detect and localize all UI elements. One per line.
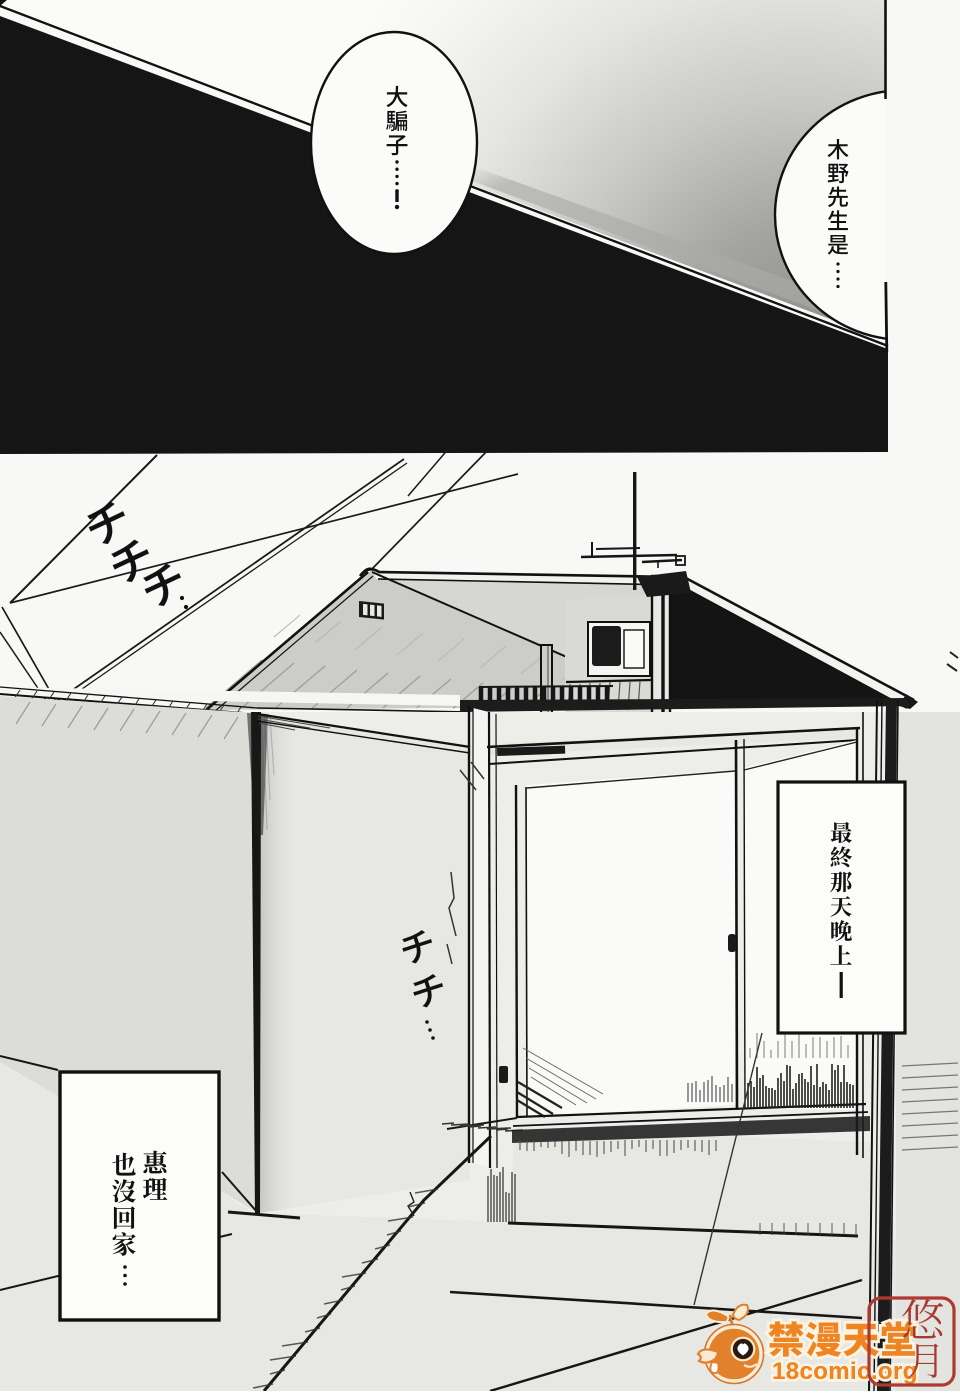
svg-text:18comic.org: 18comic.org — [772, 1358, 918, 1385]
